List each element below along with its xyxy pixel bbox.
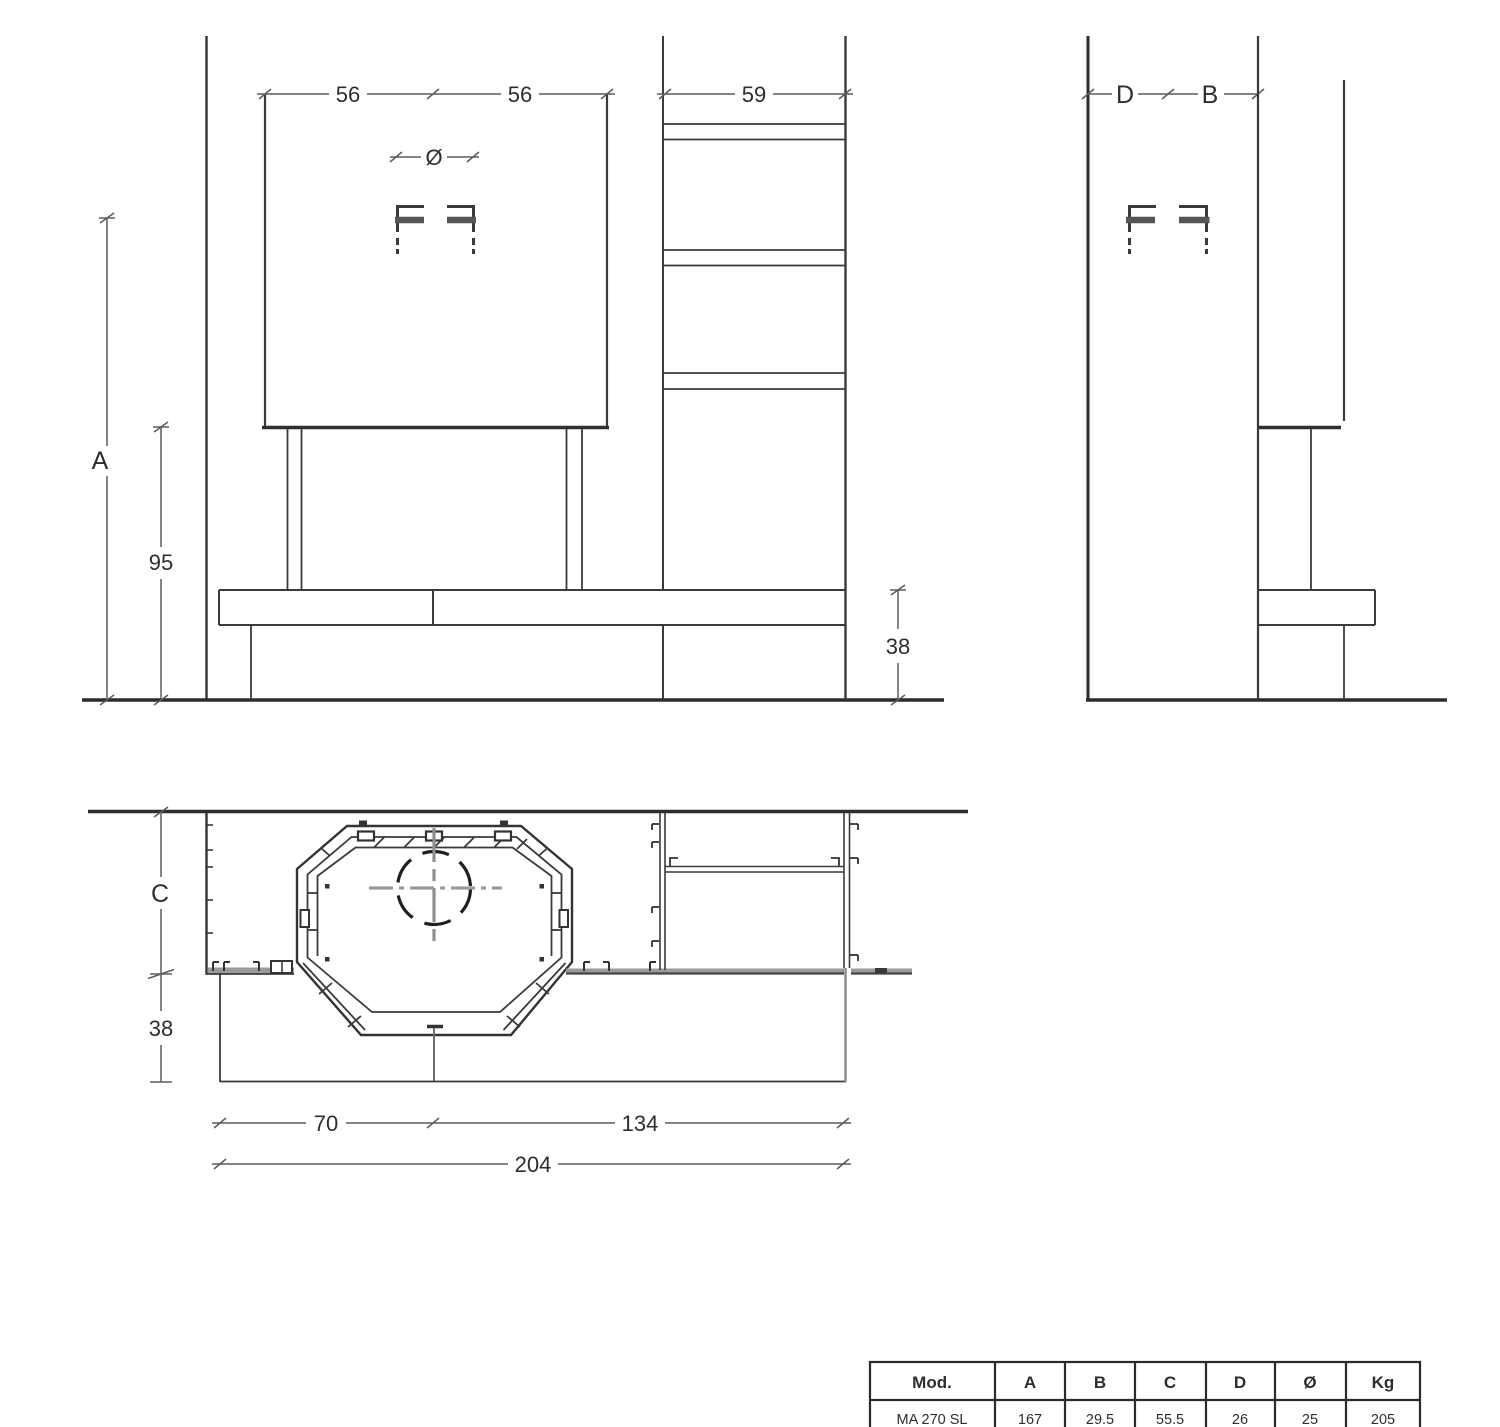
svg-text:C: C (1164, 1373, 1176, 1392)
svg-text:134: 134 (622, 1111, 659, 1136)
svg-text:38: 38 (149, 1016, 173, 1041)
svg-text:204: 204 (515, 1152, 552, 1177)
svg-text:205: 205 (1371, 1412, 1395, 1427)
svg-text:70: 70 (314, 1111, 338, 1136)
svg-text:Ø: Ø (425, 145, 442, 170)
svg-text:59: 59 (742, 82, 766, 107)
svg-text:A: A (1024, 1373, 1036, 1392)
svg-text:Kg: Kg (1372, 1373, 1395, 1392)
svg-text:26: 26 (1232, 1412, 1248, 1427)
svg-text:B: B (1094, 1373, 1106, 1392)
svg-text:29.5: 29.5 (1086, 1412, 1114, 1427)
svg-text:56: 56 (508, 82, 532, 107)
svg-text:A: A (92, 447, 109, 475)
svg-text:56: 56 (336, 82, 360, 107)
svg-text:167: 167 (1018, 1412, 1042, 1427)
svg-text:B: B (1202, 81, 1219, 109)
svg-text:25: 25 (1302, 1412, 1318, 1427)
svg-text:MA 270 SL: MA 270 SL (897, 1412, 968, 1427)
svg-text:38: 38 (886, 634, 910, 659)
svg-text:95: 95 (149, 550, 173, 575)
svg-text:C: C (151, 880, 169, 908)
svg-text:Mod.: Mod. (912, 1373, 952, 1392)
svg-text:D: D (1116, 81, 1134, 109)
svg-text:Ø: Ø (1303, 1373, 1316, 1392)
svg-text:D: D (1234, 1373, 1246, 1392)
svg-text:55.5: 55.5 (1156, 1412, 1184, 1427)
